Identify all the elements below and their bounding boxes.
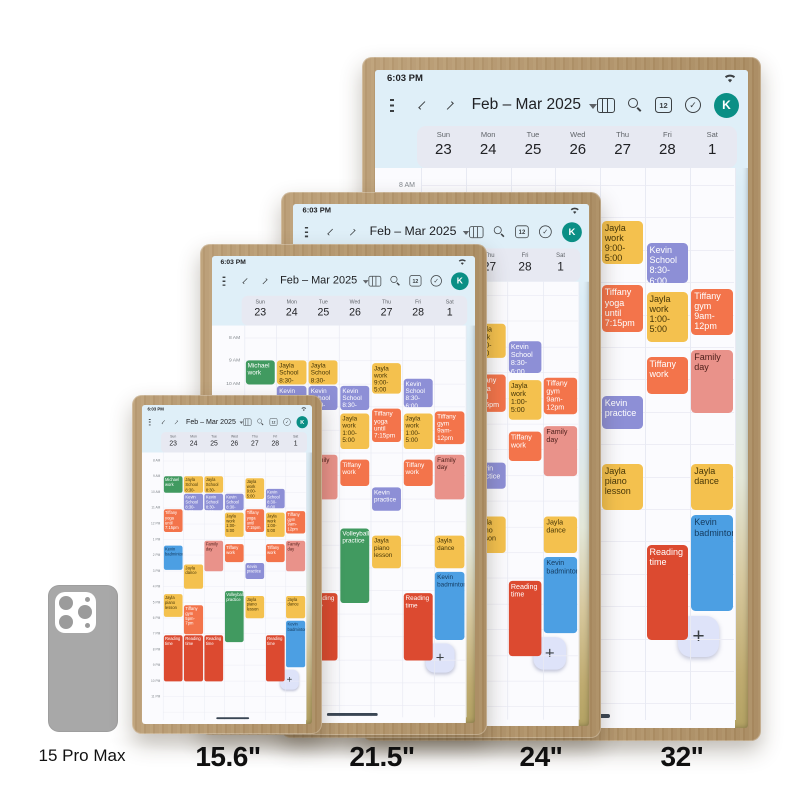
event-block[interactable]: Tiffany work (340, 459, 369, 485)
day-header-row: Sun23Mon24Tue25Wed26Thu27Fri28Sat1 (161, 432, 307, 452)
day-header-cell[interactable]: Wed26 (224, 434, 244, 448)
hour-label: 10 AM (212, 381, 240, 386)
week-view-icon[interactable] (469, 226, 483, 238)
weekday-label: Fri (265, 434, 285, 438)
wifi-icon (724, 73, 736, 83)
weekday-label: Sat (690, 130, 735, 139)
next-week-icon[interactable] (446, 101, 455, 110)
date-range-dropdown[interactable]: Feb – Mar 2025 (186, 418, 243, 427)
chevron-down-icon (589, 104, 597, 109)
status-bar: 6:03 PM (142, 405, 312, 413)
date-range-title: Feb – Mar 2025 (186, 418, 236, 427)
grid-day-line (645, 168, 646, 720)
tasks-check-icon[interactable] (685, 97, 701, 113)
nav-row: Feb – Mar 2025 12 K (293, 217, 589, 247)
day-header-cell[interactable]: Sun23 (244, 299, 276, 319)
event-block[interactable]: Kevin School 8:30-6:00 (340, 386, 369, 410)
event-block[interactable]: Tiffany work (225, 544, 244, 562)
app-header-area: 6:03 PM Feb – Mar 2025 (142, 405, 312, 453)
grid-day-line (434, 326, 435, 718)
day-header-cell[interactable]: Tue25 (511, 130, 556, 158)
event-block[interactable]: Tiffany yoga until 7:15pm (164, 509, 183, 532)
event-block[interactable]: Kevin School 8:30-6:00 (225, 494, 244, 510)
week-view-icon[interactable] (369, 276, 382, 287)
event-block[interactable]: Jayla work 1:00-5:00 (403, 413, 432, 448)
menu-icon[interactable] (223, 276, 226, 285)
hour-label: 12 PM (142, 522, 160, 525)
calendar-date-icon[interactable]: 12 (270, 418, 278, 426)
date-label: 28 (265, 439, 285, 447)
day-header-cell[interactable]: Mon24 (466, 130, 511, 158)
event-block[interactable]: Jayla work 9:00-5:00 (602, 221, 643, 264)
date-label: 23 (244, 306, 276, 318)
display-size-comparison: 15 Pro Max 6:03 PM Feb – Mar 2025 (0, 0, 800, 800)
day-header-cell[interactable]: Fri28 (507, 252, 543, 274)
date-range-dropdown[interactable]: Feb – Mar 2025 (280, 274, 368, 287)
search-icon[interactable] (257, 419, 263, 426)
event-block[interactable]: Kevin practice (245, 563, 264, 579)
hour-label: 6 PM (142, 616, 160, 619)
day-header-cell[interactable]: Fri28 (402, 299, 434, 319)
size-label-32: 32" (661, 741, 704, 773)
date-label: 1 (690, 141, 735, 158)
date-label: 28 (645, 141, 690, 158)
event-block[interactable]: Tiffany work (266, 544, 285, 562)
camera-lens-icon (59, 615, 73, 629)
date-label: 1 (285, 439, 305, 447)
event-block[interactable]: Jayla dance (184, 564, 203, 588)
event-block[interactable]: Reading time (164, 635, 183, 681)
weekday-label: Sat (543, 252, 579, 259)
day-header-cell[interactable]: Mon24 (276, 299, 308, 319)
event-block[interactable]: Jayla piano lesson (372, 535, 401, 568)
event-block[interactable]: Tiffany gym 5pm-7pm (184, 605, 203, 634)
day-header-cell[interactable]: Tue25 (308, 299, 340, 319)
weekday-label: Thu (371, 299, 403, 305)
date-range-title: Feb – Mar 2025 (472, 96, 581, 114)
event-block[interactable]: Volleyball practice (340, 528, 369, 602)
weekday-label: Tue (308, 299, 340, 305)
nav-row: Feb – Mar 2025 12 K (375, 86, 748, 124)
date-label: 27 (245, 439, 265, 447)
hour-label: 8 PM (142, 648, 160, 651)
account-avatar[interactable]: K (297, 416, 308, 428)
nav-icons: 12 K (597, 93, 748, 118)
day-header-cell[interactable]: Tue25 (204, 434, 224, 448)
date-label: 1 (543, 260, 579, 273)
phone-camera-module (55, 592, 96, 633)
date-label: 1 (434, 306, 466, 318)
weekday-label: Fri (402, 299, 434, 305)
event-block[interactable]: Family day (544, 426, 577, 476)
prev-week-icon[interactable] (162, 420, 166, 424)
event-block[interactable]: Jayla work 9:00-5:00 (245, 478, 264, 499)
weekday-label: Sun (244, 299, 276, 305)
event-block[interactable]: Family day (691, 350, 732, 413)
hour-label: 3 PM (142, 569, 160, 572)
weekday-label: Tue (204, 434, 224, 438)
event-block[interactable]: Kevin badminton (435, 572, 464, 640)
prev-week-icon[interactable] (328, 228, 335, 235)
event-block[interactable]: Jayla dance (544, 516, 577, 553)
prev-week-icon[interactable] (419, 101, 428, 110)
day-header-cell[interactable]: Wed26 (555, 130, 600, 158)
date-label: 28 (402, 306, 434, 318)
grid-day-line (543, 282, 544, 720)
event-block[interactable]: Reading time (266, 635, 285, 681)
hour-label: 4 PM (142, 585, 160, 588)
wifi-icon (458, 258, 466, 265)
date-label: 26 (555, 141, 600, 158)
calendar-date-icon[interactable]: 12 (515, 225, 528, 238)
camera-dot-icon (85, 597, 90, 602)
hour-label: 7 PM (142, 632, 160, 635)
next-week-icon[interactable] (174, 420, 178, 424)
date-label: 27 (371, 306, 403, 318)
menu-icon[interactable] (149, 419, 151, 425)
home-indicator[interactable] (216, 717, 249, 719)
event-block[interactable]: Kevin practice (602, 396, 643, 430)
prev-week-icon[interactable] (243, 278, 249, 284)
app-header-area: 6:03 PM Feb – Mar 2025 (375, 70, 748, 168)
calendar-date-icon[interactable]: 12 (655, 97, 672, 113)
weekday-label: Sun (163, 434, 183, 438)
event-block[interactable]: Kevin practice (372, 487, 401, 511)
hour-label: 10 PM (142, 679, 160, 682)
event-block[interactable]: Kevin School 8:30-6:00 (403, 379, 432, 407)
weekday-label: Thu (600, 130, 645, 139)
event-block[interactable]: Jayla work 1:00-5:00 (266, 513, 285, 537)
event-block[interactable]: Volleyball practice (225, 591, 244, 642)
hour-label: 9 PM (142, 663, 160, 666)
event-block[interactable]: Jayla work 1:00-5:00 (340, 413, 369, 448)
day-header-row: Sun23Mon24Tue25Wed26Thu27Fri28Sat1 (417, 126, 737, 168)
status-bar: 6:03 PM (212, 256, 475, 267)
hour-label: 5 PM (142, 601, 160, 604)
hour-label: 11 PM (142, 695, 160, 698)
event-block[interactable]: Tiffany yoga until 7:15pm (602, 285, 643, 332)
event-block[interactable]: Family day (286, 541, 305, 571)
grid-hour-line (421, 185, 734, 186)
weekday-label: Fri (507, 252, 543, 259)
event-block[interactable]: Jayla work 1:00-5:00 (647, 292, 688, 342)
weekday-label: Fri (645, 130, 690, 139)
event-block[interactable]: Michael work (164, 476, 183, 492)
event-block[interactable]: Reading time (204, 635, 223, 681)
date-range-dropdown[interactable]: Feb – Mar 2025 (370, 225, 470, 239)
weekday-label: Thu (245, 434, 265, 438)
home-indicator[interactable] (327, 713, 378, 716)
weekday-label: Sat (285, 434, 305, 438)
event-block[interactable]: Kevin School 8:30-6:00 (204, 494, 223, 510)
search-icon[interactable] (494, 226, 505, 237)
event-block[interactable]: Tiffany gym 9am-12pm (435, 411, 464, 444)
event-block[interactable]: Jayla dance (286, 596, 305, 619)
weekday-label: Mon (466, 130, 511, 139)
event-block[interactable]: Reading time (508, 581, 541, 657)
status-time: 6:03 PM (303, 206, 331, 215)
next-week-icon[interactable] (262, 278, 268, 284)
event-block[interactable]: Jayla work 9:00-5:00 (372, 363, 401, 394)
weekday-label: Sun (421, 130, 466, 139)
weekday-label: Mon (276, 299, 308, 305)
event-block[interactable]: Family day (204, 541, 223, 571)
event-block[interactable]: Tiffany work (403, 459, 432, 485)
event-block[interactable]: Tiffany work (508, 431, 541, 460)
weekday-label: Mon (183, 434, 203, 438)
wifi-icon (301, 406, 306, 411)
size-label-15-6: 15.6" (195, 741, 260, 773)
display-15-6-inch: 6:03 PM Feb – Mar 2025 (132, 395, 322, 734)
event-block[interactable]: Tiffany gym 9am-12pm (691, 289, 732, 336)
status-bar: 6:03 PM (375, 70, 748, 86)
nav-icons: 12 K (369, 272, 475, 290)
event-block[interactable]: Jayla work 1:00-5:00 (225, 513, 244, 537)
week-view-icon[interactable] (243, 418, 251, 425)
nav-row: Feb – Mar 2025 12 K (212, 267, 475, 294)
day-header-cell[interactable]: Fri28 (645, 130, 690, 158)
grid-day-line (578, 282, 579, 720)
event-block[interactable]: Jayla School 8:30-6:00 (204, 476, 223, 492)
camera-lens-icon (59, 596, 73, 610)
event-block[interactable]: Kevin badminton (164, 546, 183, 570)
event-block[interactable]: Kevin School 8:30-6:00 (184, 494, 203, 510)
grid-hour-line (244, 338, 465, 339)
event-block[interactable]: Tiffany yoga until 7:15pm (372, 409, 401, 442)
date-label: 25 (511, 141, 556, 158)
tasks-check-icon[interactable] (431, 275, 442, 286)
status-time: 6:03 PM (387, 73, 423, 84)
day-header-cell[interactable]: Thu27 (600, 130, 645, 158)
day-header-cell[interactable]: Sun23 (163, 434, 183, 448)
nav-icons: 12 K (243, 416, 312, 428)
event-block[interactable]: Kevin badminton (286, 621, 305, 667)
event-block[interactable]: Jayla piano lesson (602, 464, 643, 511)
day-header-cell[interactable]: Thu27 (245, 434, 265, 448)
app-header-area: 6:03 PM Feb – Mar 2025 (212, 256, 475, 326)
date-label: 24 (276, 306, 308, 318)
event-block[interactable]: Tiffany gym 9am-12pm (544, 377, 577, 414)
day-header-cell[interactable]: Mon24 (183, 434, 203, 448)
menu-icon[interactable] (305, 227, 308, 237)
event-block[interactable]: Tiffany work (647, 357, 688, 394)
size-label-24: 24" (520, 741, 563, 773)
event-block[interactable]: Jayla dance (435, 535, 464, 568)
date-label: 26 (224, 439, 244, 447)
date-label: 27 (600, 141, 645, 158)
event-block[interactable]: Jayla dance (691, 464, 732, 511)
day-header-cell[interactable]: Wed26 (339, 299, 371, 319)
date-label: 24 (466, 141, 511, 158)
date-label: 23 (163, 439, 183, 447)
grid-day-line (339, 326, 340, 718)
account-avatar[interactable]: K (714, 93, 739, 118)
nav-row: Feb – Mar 2025 12 K (142, 413, 312, 431)
wifi-icon (570, 206, 580, 214)
day-header-cell[interactable]: Sat1 (285, 434, 305, 448)
account-avatar[interactable]: K (562, 222, 582, 242)
iphone-15-pro-max (48, 585, 118, 732)
weekday-label: Wed (339, 299, 371, 305)
date-range-title: Feb – Mar 2025 (370, 225, 457, 239)
grid-day-line (466, 326, 467, 718)
event-block[interactable]: Jayla School 8:30-6:00 (309, 361, 338, 385)
grid-day-line (735, 168, 736, 720)
search-icon[interactable] (390, 276, 400, 286)
camera-dot-icon (85, 623, 90, 628)
hour-label: 8 AM (212, 335, 240, 340)
status-time: 6:03 PM (147, 406, 163, 411)
nav-icons: 12 K (469, 222, 589, 242)
weekday-label: Sat (434, 299, 466, 305)
date-range-title: Feb – Mar 2025 (280, 274, 357, 287)
account-avatar[interactable]: K (451, 272, 469, 290)
event-block[interactable]: Tiffany yoga until 7:15pm (245, 509, 264, 532)
weekday-label: Tue (511, 130, 556, 139)
date-label: 26 (339, 306, 371, 318)
next-week-icon[interactable] (349, 228, 356, 235)
camera-lens-icon (78, 605, 92, 619)
event-block[interactable]: Kevin School 8:30-6:00 (508, 341, 541, 373)
event-block[interactable]: Jayla piano lesson (245, 596, 264, 619)
event-block[interactable]: Jayla piano lesson (164, 594, 183, 617)
day-header-cell[interactable]: Sat1 (690, 130, 735, 158)
hour-label: 1 PM (142, 538, 160, 541)
search-icon[interactable] (628, 98, 642, 112)
event-block[interactable]: Family day (435, 455, 464, 500)
menu-icon[interactable] (390, 99, 394, 112)
event-block[interactable]: Jayla School 8:30-6:00 (277, 361, 306, 385)
event-block[interactable]: Tiffany gym 9am-12pm (286, 511, 305, 534)
date-range-dropdown[interactable]: Feb – Mar 2025 (472, 96, 597, 114)
hour-label: 8 AM (142, 459, 160, 462)
date-label: 23 (421, 141, 466, 158)
event-block[interactable]: Jayla work 1:00-5:00 (508, 380, 541, 420)
event-block[interactable]: Kevin School 8:30-6:00 (266, 489, 285, 508)
date-label: 28 (507, 260, 543, 273)
calendar-grid: + 8 AM9 AM10 AM11 AM12 PM1 PM2 PM3 PM4 P… (142, 453, 306, 724)
date-label: 25 (308, 306, 340, 318)
date-label: 25 (204, 439, 224, 447)
status-time: 6:03 PM (220, 258, 245, 266)
event-block[interactable]: Reading time (403, 593, 432, 661)
tasks-check-icon[interactable] (283, 418, 290, 426)
screen-15-6-inch: 6:03 PM Feb – Mar 2025 (142, 405, 312, 724)
hour-label: 2 PM (142, 554, 160, 557)
event-block[interactable]: Kevin badminton (691, 515, 732, 610)
week-view-icon[interactable] (597, 98, 615, 113)
size-label-21-5: 21.5" (349, 741, 414, 773)
hour-label: 9 AM (212, 358, 240, 363)
event-block[interactable]: Jayla School 8:30-6:00 (184, 476, 203, 492)
event-block[interactable]: Reading time (184, 635, 203, 681)
calendar-date-icon[interactable]: 12 (409, 275, 421, 286)
hour-label: 9 AM (142, 475, 160, 478)
grid-day-line (690, 168, 691, 720)
hour-label: 11 AM (142, 506, 160, 509)
phone-size-label: 15 Pro Max (39, 746, 126, 766)
hour-label: 8 AM (375, 182, 415, 189)
hour-label: 10 AM (142, 491, 160, 494)
calendar-app: 6:03 PM Feb – Mar 2025 (142, 405, 312, 724)
status-bar: 6:03 PM (293, 204, 589, 217)
date-label: 24 (183, 439, 203, 447)
weekday-label: Wed (224, 434, 244, 438)
day-header-cell[interactable]: Fri28 (265, 434, 285, 448)
day-header-cell[interactable]: Sun23 (421, 130, 466, 158)
day-header-row: Sun23Mon24Tue25Wed26Thu27Fri28Sat1 (242, 296, 468, 326)
tasks-check-icon[interactable] (539, 225, 552, 238)
event-block[interactable]: Michael work (245, 361, 274, 385)
day-header-cell[interactable]: Sat1 (543, 252, 579, 274)
event-block[interactable]: Reading time (647, 545, 688, 640)
day-header-cell[interactable]: Sat1 (434, 299, 466, 319)
day-header-cell[interactable]: Thu27 (371, 299, 403, 319)
event-block[interactable]: Kevin School 8:30-6:00 (647, 243, 688, 283)
weekday-label: Wed (555, 130, 600, 139)
event-block[interactable]: Kevin badminton (544, 557, 577, 633)
